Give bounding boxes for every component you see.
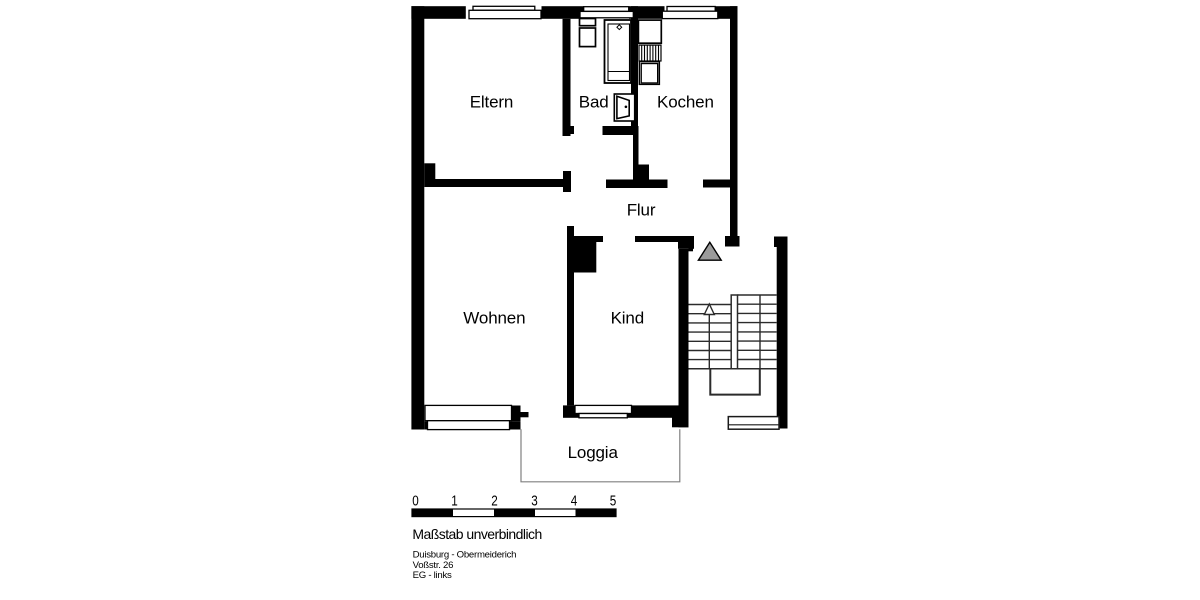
svg-text:1: 1 xyxy=(451,492,458,509)
svg-text:Bad: Bad xyxy=(579,93,609,112)
svg-text:EG - links: EG - links xyxy=(413,570,452,581)
svg-text:4: 4 xyxy=(571,492,578,509)
svg-text:Kochen: Kochen xyxy=(657,93,714,112)
svg-text:5: 5 xyxy=(610,492,617,509)
svg-text:Loggia: Loggia xyxy=(568,443,619,462)
svg-text:2: 2 xyxy=(491,492,498,509)
svg-text:Wohnen: Wohnen xyxy=(463,308,525,327)
svg-text:0: 0 xyxy=(412,492,419,509)
svg-text:3: 3 xyxy=(531,492,538,509)
svg-text:Eltern: Eltern xyxy=(470,93,514,112)
svg-text:Kind: Kind xyxy=(611,309,644,328)
svg-text:Maßstab unverbindlich: Maßstab unverbindlich xyxy=(412,526,541,542)
svg-text:Flur: Flur xyxy=(627,201,656,220)
